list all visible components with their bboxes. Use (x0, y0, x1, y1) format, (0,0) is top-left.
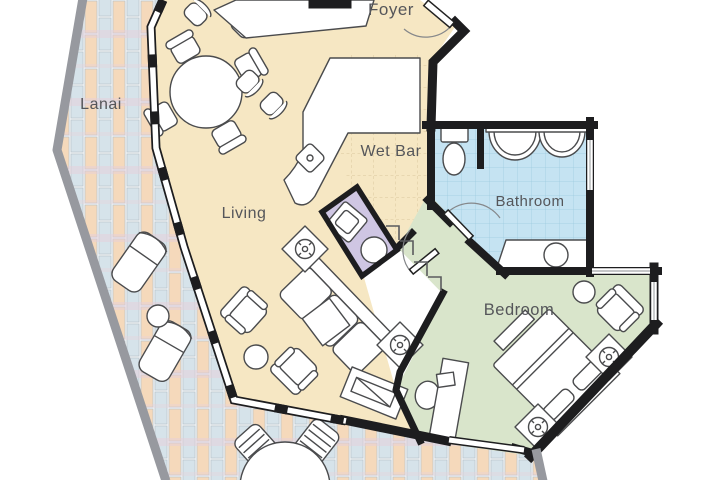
bedroom-side-table (573, 281, 595, 303)
wall-bath-stub (477, 123, 484, 169)
label-lanai: Lanai (80, 96, 122, 113)
label-wet-bar: Wet Bar (361, 143, 422, 160)
label-living: Living (222, 205, 267, 222)
floor-plan-drawing: Foyer Lanai Wet Bar Living Bathroom Bedr… (0, 0, 720, 480)
bath-vanity-seat (496, 240, 588, 271)
label-foyer: Foyer (368, 0, 414, 19)
label-bathroom: Bathroom (495, 193, 564, 210)
label-bedroom: Bedroom (484, 301, 554, 319)
lanai-side-table (147, 305, 169, 327)
toilet (441, 127, 468, 175)
floor-plan-page: Foyer Lanai Wet Bar Living Bathroom Bedr… (0, 0, 720, 480)
dining-table (170, 56, 242, 128)
side-table (244, 345, 268, 369)
